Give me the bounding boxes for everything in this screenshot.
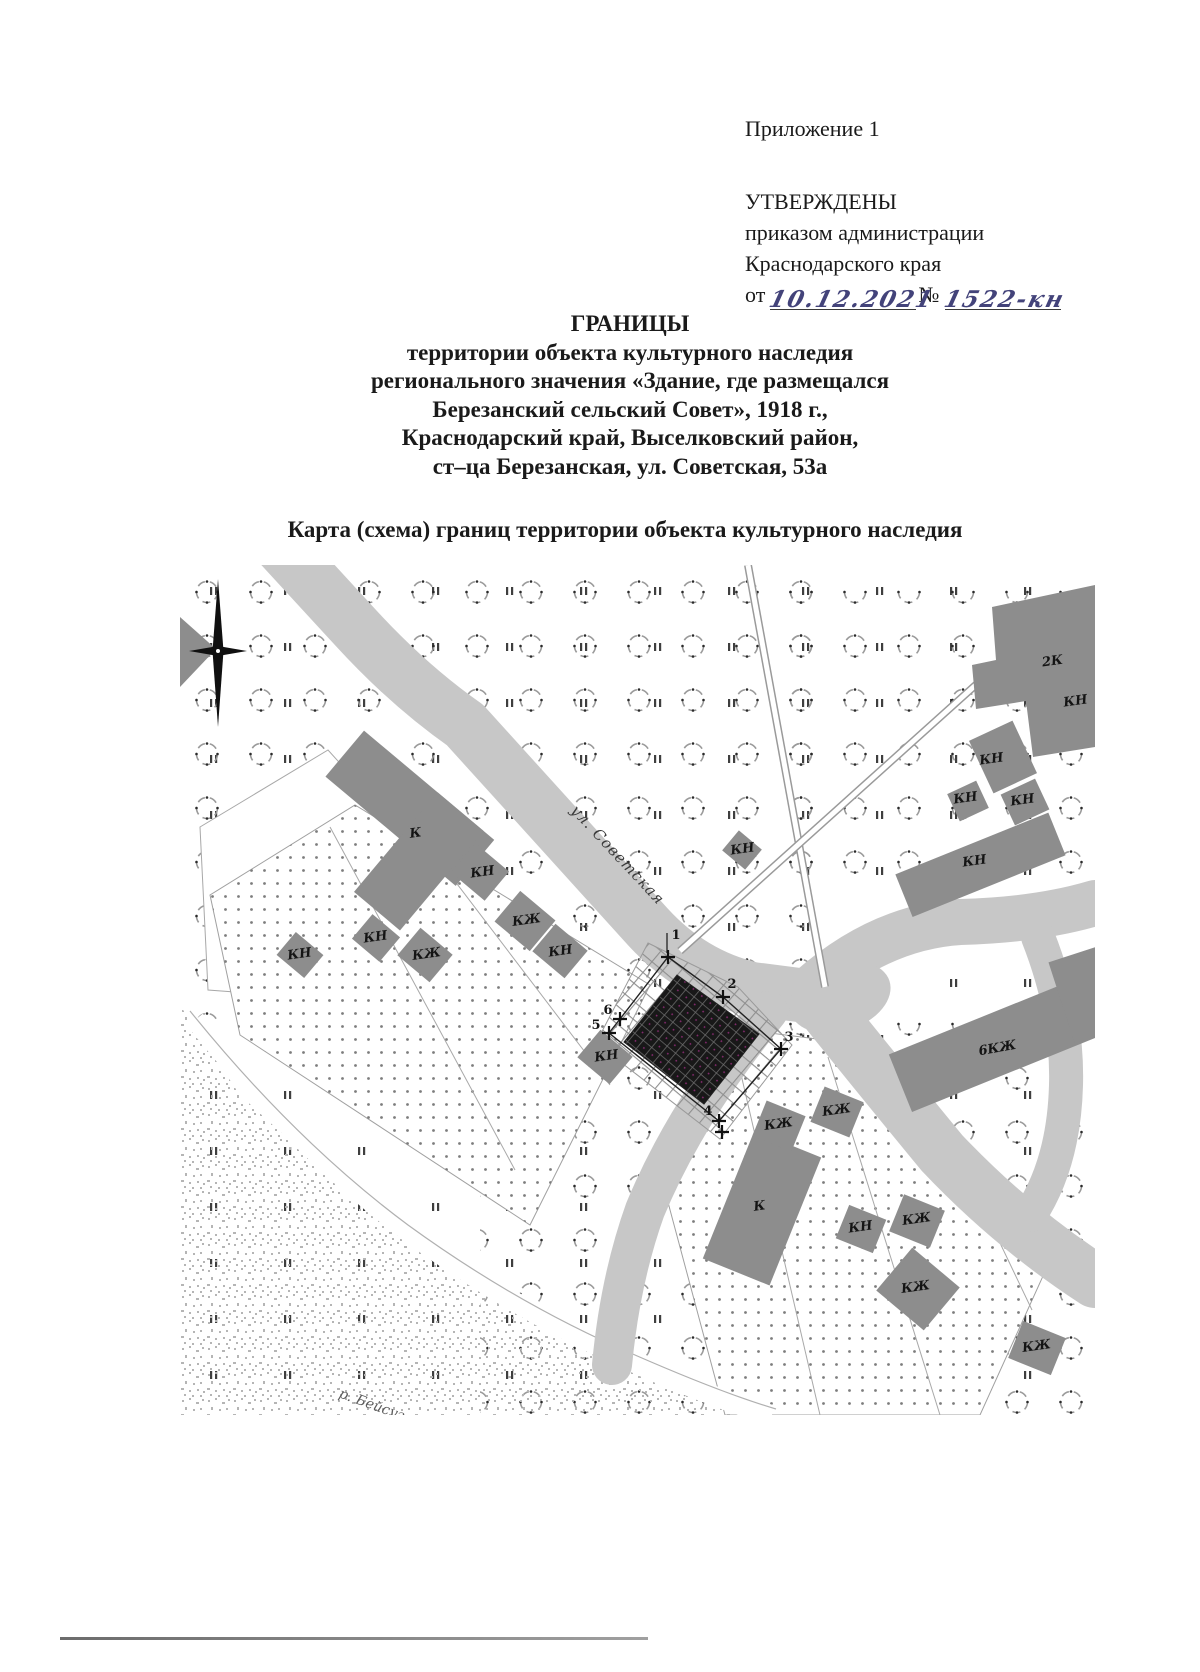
approval-block: УТВЕРЖДЕНЫ приказом администрации Красно… xyxy=(745,186,1061,310)
boundary-point-number: 5 xyxy=(591,1018,600,1033)
building-label: 2К xyxy=(1040,653,1064,671)
from-label: от xyxy=(745,282,765,307)
boundary-point-number: 6 xyxy=(603,1003,612,1018)
footer-rule xyxy=(60,1637,648,1640)
map-caption: Карта (схема) границ территории объекта … xyxy=(125,517,1125,543)
approved-by-line1: приказом администрации xyxy=(745,217,1061,248)
order-date-line: от10.12.2021№1522-кн xyxy=(745,279,1061,310)
boundary-point-number: 2 xyxy=(727,977,736,992)
date-underline: 10.12.2021 xyxy=(770,283,916,310)
building-label: К xyxy=(408,825,423,842)
boundary-point-number: 3 xyxy=(784,1030,793,1045)
approved-word: УТВЕРЖДЕНЫ xyxy=(745,186,1061,217)
title-line-4: Березанский сельский Совет», 1918 г., xyxy=(130,396,1130,425)
title-line-5: Краснодарский край, Выселковский район, xyxy=(130,424,1130,453)
boundary-point-number: 4 xyxy=(703,1104,712,1119)
building-label: К xyxy=(752,1198,767,1215)
approved-by-line2: Краснодарского края xyxy=(745,248,1061,279)
boundary-point-number: 1 xyxy=(671,928,680,943)
title-line-3: регионального значения «Здание, где разм… xyxy=(130,367,1130,396)
title-line-2: территории объекта культурного наследия xyxy=(130,339,1130,368)
document-title: ГРАНИЦЫ территории объекта культурного н… xyxy=(130,310,1130,481)
title-line-6: ст–ца Березанская, ул. Советская, 53а xyxy=(130,453,1130,482)
map-scheme: ККНКЖКНКЖКНКНКНКН2ККНКНКНКНКН6КЖККЖКЖКНК… xyxy=(180,565,1095,1415)
title-line-1: ГРАНИЦЫ xyxy=(130,310,1130,339)
number-underline: 1522-кн xyxy=(945,283,1061,310)
appendix-label: Приложение 1 xyxy=(745,116,880,142)
